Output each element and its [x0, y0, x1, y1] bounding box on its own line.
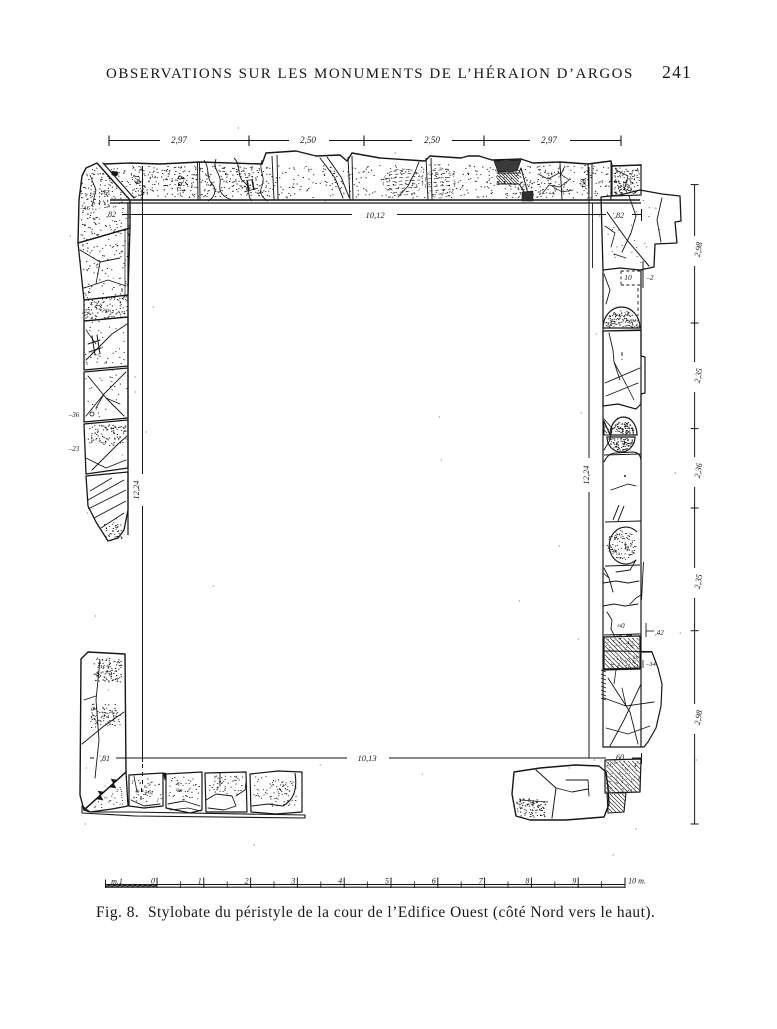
- svg-text:,82: ,82: [614, 211, 624, 220]
- svg-text:–6: –6: [100, 189, 109, 197]
- svg-text:12,24: 12,24: [131, 480, 141, 500]
- svg-text:≈0: ≈0: [617, 622, 625, 630]
- svg-text:,60: ,60: [614, 753, 624, 762]
- svg-text:,60: ,60: [132, 175, 142, 186]
- svg-text:,42: ,42: [655, 629, 664, 637]
- svg-text:≈o: ≈o: [103, 307, 111, 314]
- svg-text:–34: –34: [645, 661, 657, 668]
- svg-text:2: 2: [245, 877, 249, 886]
- svg-text:Fig. 8. Stylobate du péristyl: Fig. 8. Stylobate du péristyle de la cou…: [96, 904, 655, 921]
- svg-text:10 m.: 10 m.: [628, 877, 646, 886]
- svg-text:5: 5: [385, 877, 389, 886]
- svg-text:0: 0: [151, 877, 155, 886]
- svg-text:10: 10: [624, 273, 632, 282]
- svg-text:m.1: m.1: [111, 877, 123, 886]
- svg-text:,81: ,81: [100, 754, 110, 763]
- svg-text:OBSERVATIONS SUR LES MONUMENTS: OBSERVATIONS SUR LES MONUMENTS DE L’HÉRA…: [106, 65, 634, 82]
- svg-text:–23: –23: [68, 445, 80, 453]
- svg-text:1: 1: [198, 877, 202, 886]
- svg-text:–2: –2: [646, 274, 655, 282]
- svg-text:2,97: 2,97: [541, 135, 557, 145]
- svg-text:2,50: 2,50: [300, 135, 316, 145]
- svg-text:8: 8: [525, 877, 529, 886]
- svg-text:≈o: ≈o: [176, 787, 184, 794]
- svg-text:,82: ,82: [106, 210, 116, 219]
- svg-text:,60: ,60: [578, 178, 588, 189]
- svg-text:9: 9: [572, 877, 576, 886]
- svg-text:241: 241: [662, 62, 692, 82]
- svg-text:–46: –46: [79, 205, 91, 212]
- svg-text:6: 6: [432, 877, 436, 886]
- svg-text:10,13: 10,13: [357, 753, 376, 763]
- svg-text:–6•: –6•: [144, 789, 154, 796]
- svg-text:–36: –36: [68, 411, 80, 419]
- svg-text:10,12: 10,12: [365, 210, 385, 220]
- svg-text:⋮: ⋮: [134, 789, 140, 796]
- svg-text:3: 3: [290, 877, 295, 886]
- svg-text:12,24: 12,24: [581, 465, 591, 485]
- svg-text:2,50: 2,50: [424, 135, 440, 145]
- svg-text:2,97: 2,97: [171, 135, 187, 145]
- svg-text:4: 4: [338, 877, 342, 886]
